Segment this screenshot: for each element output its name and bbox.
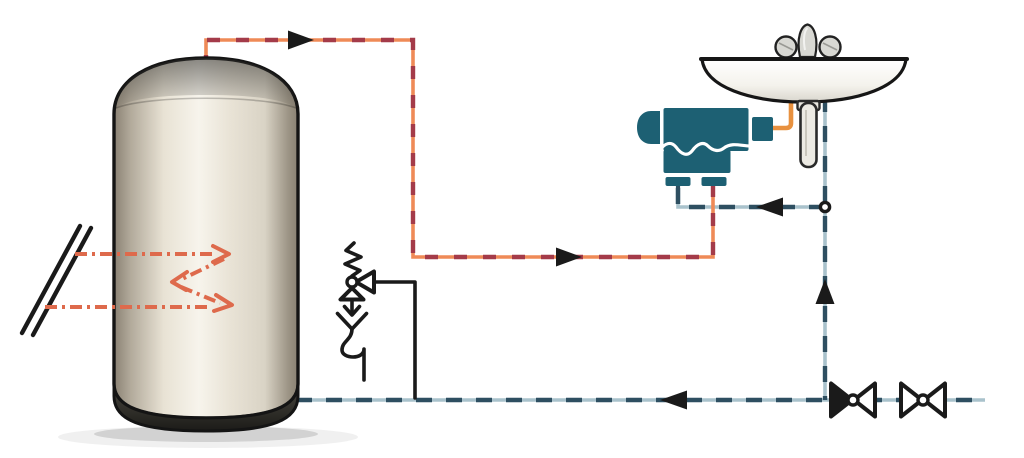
mixed-water-pipe [770, 99, 791, 128]
basin-drain [798, 101, 820, 167]
cold-pipe-mixer-feed-dashes [678, 184, 825, 207]
cold-water-pipe [296, 96, 985, 410]
valve-spring-icon [345, 243, 361, 276]
flow-arrow-left-icon [756, 198, 783, 217]
mixer-cold-inlet-port [666, 177, 691, 186]
mixer-outlet-port [752, 117, 773, 141]
tank-body [114, 58, 298, 418]
schematic-canvas [0, 0, 1024, 458]
thermostatic-mixing-valve [637, 108, 773, 204]
valve-triangle-bottom [341, 288, 364, 300]
basin-bowl [702, 59, 906, 102]
cold-pipe-mixer-feed [678, 184, 825, 207]
mixer-hot-inlet-port [702, 177, 727, 186]
drain-tailpiece [801, 103, 817, 167]
safety-valve [338, 243, 416, 398]
collector-panel-line [22, 226, 80, 333]
flow-arrow-right-icon [288, 31, 314, 50]
faucet [776, 25, 841, 58]
check-valve [831, 384, 875, 417]
solar-collector [22, 226, 91, 335]
safety-valve-pipe [373, 282, 415, 398]
shutoff-valve-pivot [918, 395, 928, 405]
mixer-motor-cap [637, 111, 660, 144]
collector-panel-line [33, 228, 91, 335]
pipe-junction [820, 202, 829, 211]
flow-arrow-up-icon [816, 279, 835, 304]
solar-water-heating-diagram [0, 0, 1024, 458]
flow-arrow-right-icon [556, 248, 582, 267]
check-valve-pivot [848, 395, 858, 405]
mixer-lower-body [664, 150, 731, 173]
valve-triangle-right [356, 272, 374, 293]
valve-pivot [347, 277, 357, 287]
drain-siphon [342, 329, 364, 380]
flow-arrow-left-icon [660, 391, 687, 410]
shutoff-valve [901, 384, 945, 417]
